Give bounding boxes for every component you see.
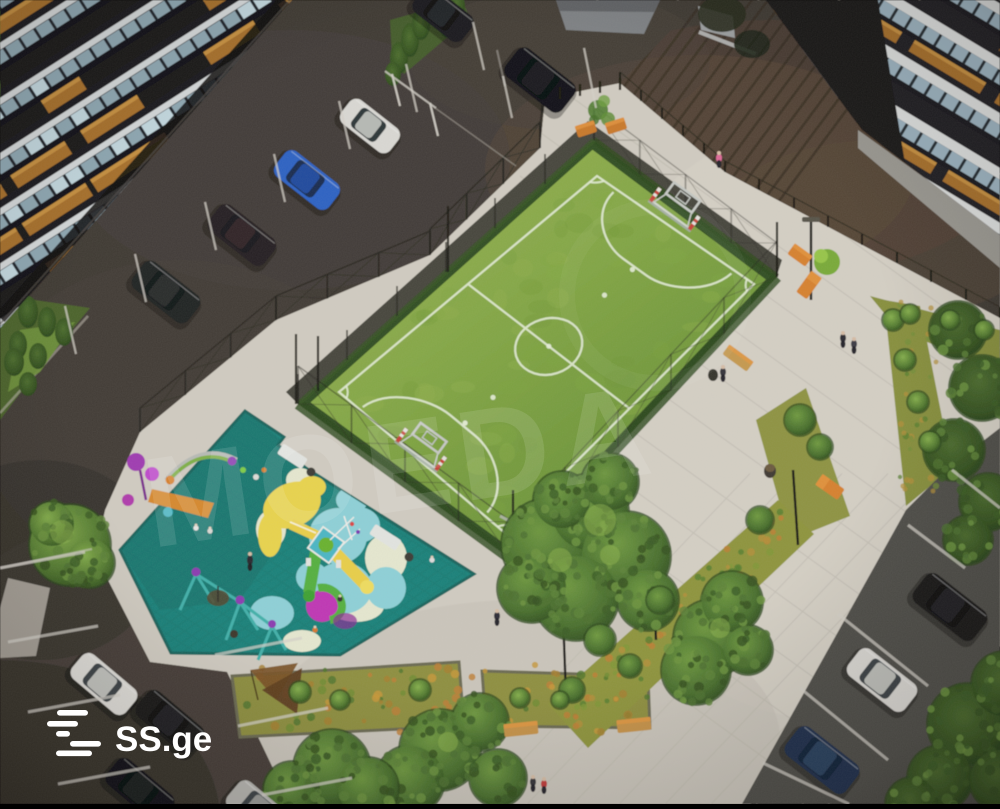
- svg-text:SS.ge: SS.ge: [115, 720, 212, 759]
